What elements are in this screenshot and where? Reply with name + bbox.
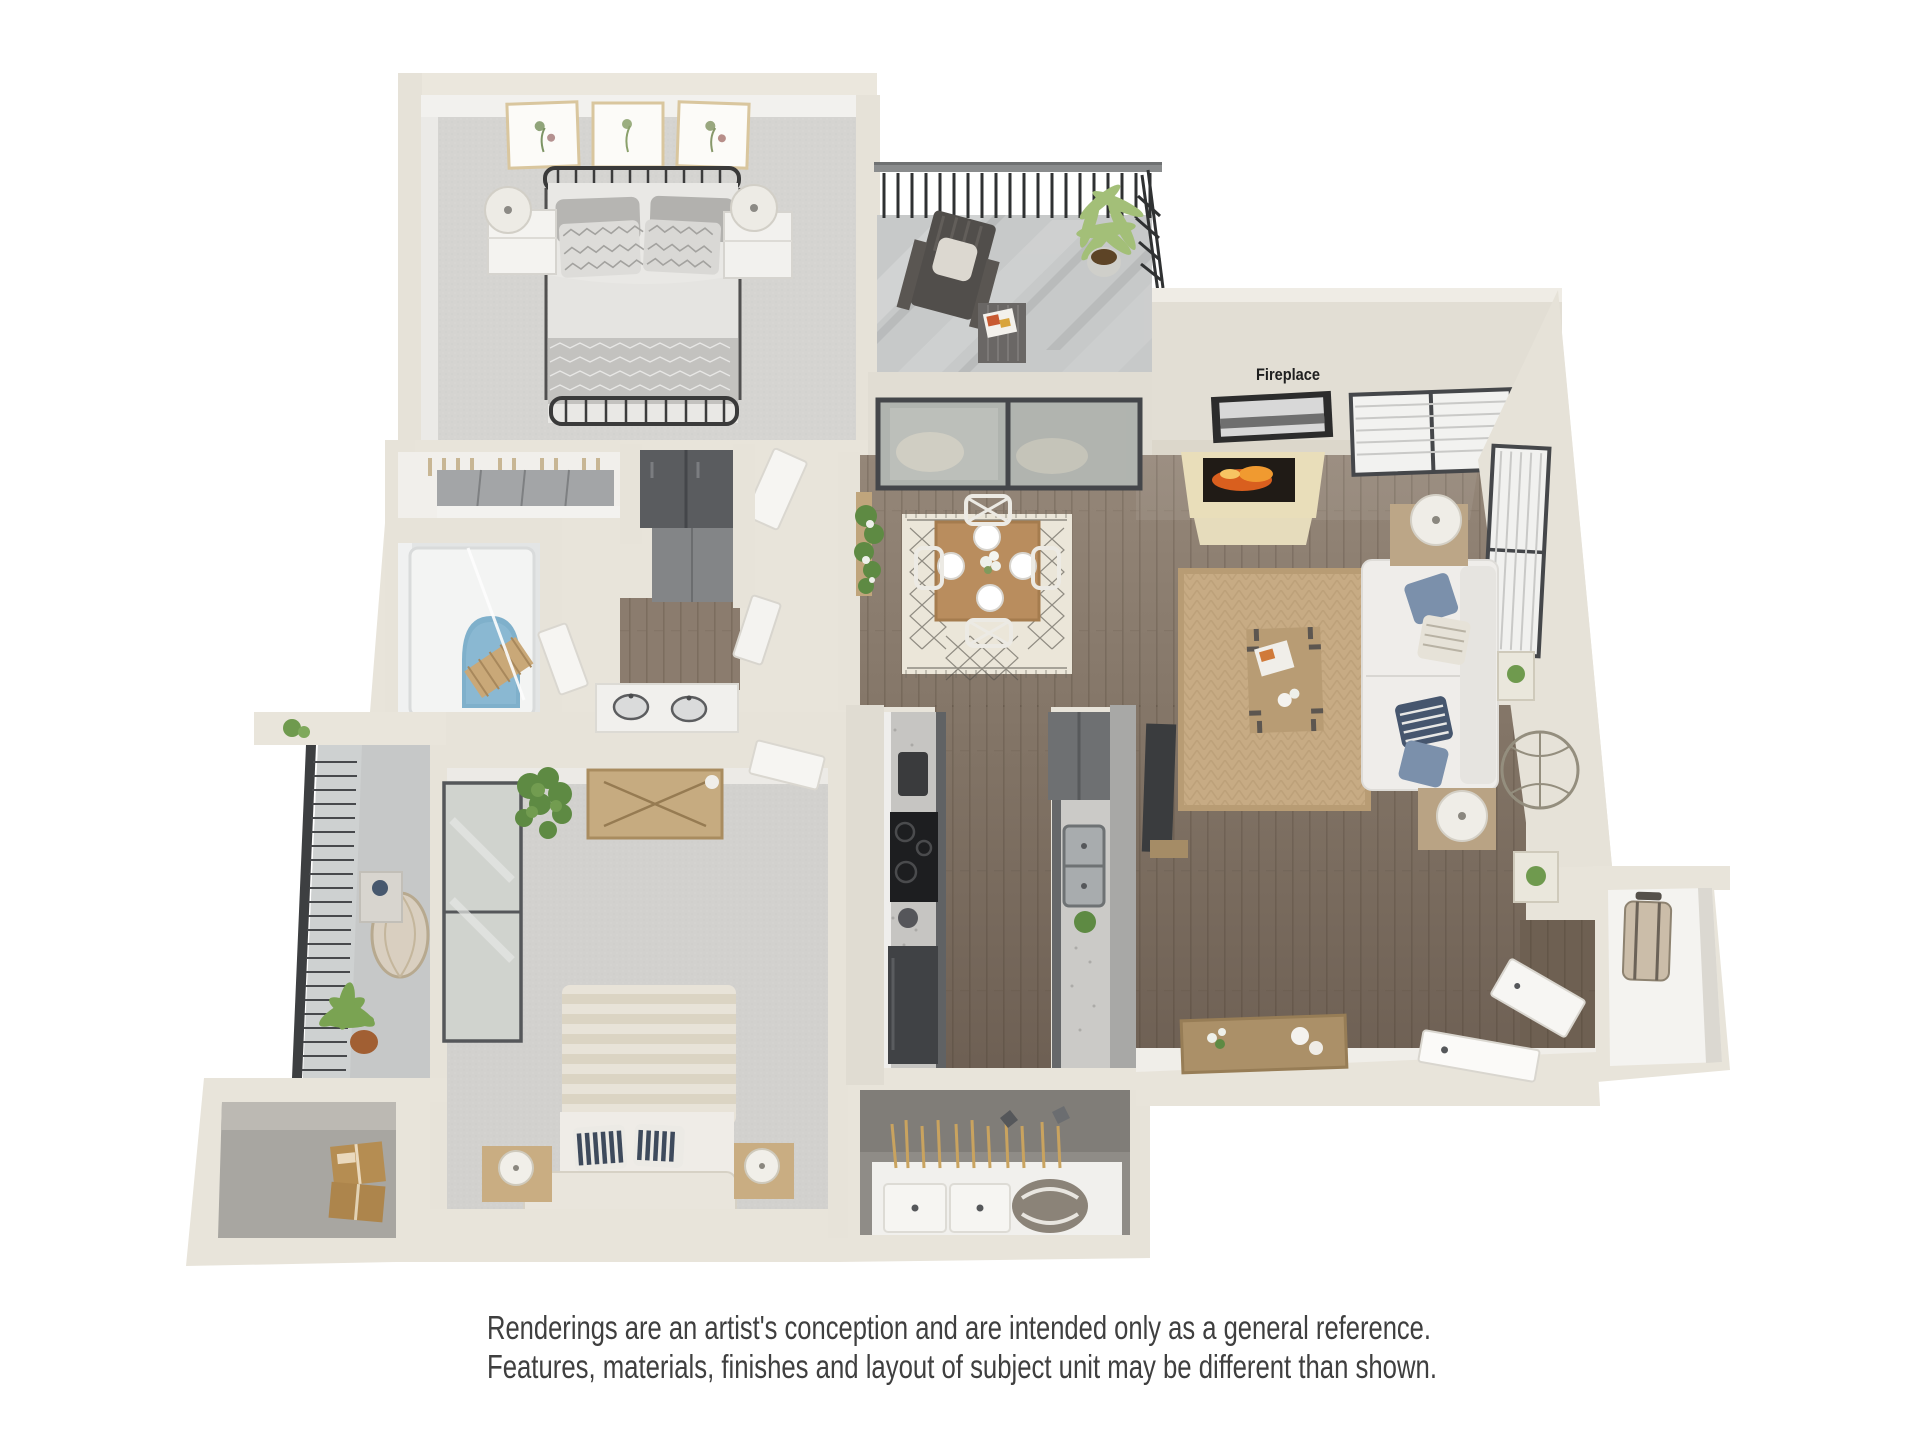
svg-text:Renderings are an artist's con: Renderings are an artist's conception an… (487, 1309, 1431, 1346)
svg-text:Features, materials, finishes: Features, materials, finishes and layout… (487, 1348, 1437, 1385)
svg-text:Fireplace: Fireplace (1256, 365, 1320, 384)
